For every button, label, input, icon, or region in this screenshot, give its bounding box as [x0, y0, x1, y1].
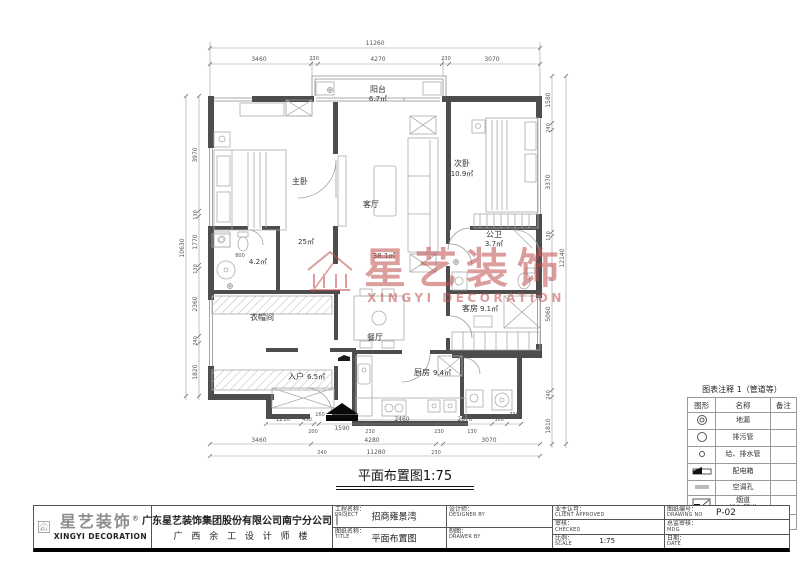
- legend-header-row: 图形 名称 备注: [688, 398, 797, 413]
- sewage-pipe-icon: [695, 431, 709, 443]
- legend-icon-cell: [688, 413, 716, 430]
- room-master-bath-area: 4.2㎡: [249, 258, 267, 266]
- dim-bottom: 3070: [481, 437, 496, 444]
- plan-title: 平面布置图1:75: [336, 465, 474, 490]
- dim-right: 130: [546, 231, 552, 241]
- dim-left: 130: [193, 210, 199, 220]
- dim-left: 130: [193, 264, 199, 274]
- dim-bottom: 230: [434, 429, 444, 435]
- dim-right: 240: [546, 390, 552, 400]
- legend-icon-cell: [688, 481, 716, 496]
- checked-cell: 审核：CHECKED: [553, 520, 664, 534]
- room-public-bath-area: 3.7㎡: [485, 240, 503, 248]
- legend-note: [770, 464, 796, 481]
- room-balcony-area: 6.7㎡: [369, 95, 387, 103]
- dim-right: 240: [546, 123, 552, 133]
- room-second-area: 10.9㎡: [451, 170, 474, 178]
- room-kitchen-area: 9.4㎡: [433, 369, 451, 377]
- date-label-en: DATE: [667, 542, 787, 547]
- dim-bottom: 130: [467, 429, 477, 435]
- dim-left: 1820: [192, 364, 199, 379]
- dim-left: 240: [193, 336, 199, 346]
- titleblock-col-staff: 设计师：DESIGNER BY 制图：DRAWER BY: [447, 506, 553, 548]
- dim-bottom: 430: [302, 417, 312, 423]
- dim-bottom: 11280: [366, 449, 385, 456]
- drawing-no-cell: 图纸编号：DRAWING NO P-02: [665, 506, 789, 520]
- room-labels: 阳台 6.7㎡ 主卧 25㎡ 客厅 38.1㎡ 次卧 10.9㎡ 4.2㎡ 衣帽…: [249, 84, 503, 381]
- legend-row: 配电箱: [688, 464, 797, 481]
- xingyi-logo-icon: [38, 509, 50, 545]
- room-cloakroom: 衣帽间: [250, 312, 274, 322]
- date-cell: 日期：DATE: [665, 535, 789, 548]
- drawing-sheet: 11260 3460 230 4270 230 3070 10630 3970 …: [0, 0, 800, 565]
- legend-note: [770, 447, 796, 464]
- client-approve-cell: 业主认可：CLIENT APPROVED: [553, 506, 664, 520]
- dim-right-total: 12140: [559, 248, 566, 267]
- distribution-box-symbol: [338, 355, 350, 361]
- furniture: [212, 82, 540, 420]
- dim-bottom: 230: [365, 429, 375, 435]
- legend-title: 图表注释 1（管道等）: [687, 384, 797, 395]
- drawer-cell: 制图：DRAWER BY: [447, 528, 552, 549]
- dim-bottom: 230: [431, 450, 441, 456]
- dim-bottom: 1590: [334, 425, 349, 432]
- dim-top: 3460: [251, 56, 266, 63]
- scale-cell: 比例：SCALE 1:75: [553, 535, 664, 548]
- titleblock-col-review: 业主认可：CLIENT APPROVED 审核：CHECKED 比例：SCALE…: [553, 506, 665, 548]
- legend-row: 给、排水管: [688, 447, 797, 464]
- designer-cell: 设计师：DESIGNER BY: [447, 506, 552, 528]
- legend-row: 地漏: [688, 413, 797, 430]
- dim-right: 3370: [545, 174, 552, 189]
- scale-value: 1:75: [599, 537, 615, 545]
- legend-header: 备注: [770, 398, 796, 413]
- titleblock-col-project: 工程名称：PROJECT 招商雍景湾 图纸名称：TITLE 平面布置图: [333, 506, 447, 548]
- room-kitchen: 厨房: [414, 367, 430, 377]
- legend-header: 图形: [688, 398, 716, 413]
- legend-name: 排污管: [716, 430, 771, 447]
- dim-bottom: 160: [315, 412, 325, 418]
- dim-top: 3070: [484, 56, 499, 63]
- room-entry-area: 6.5㎡: [307, 373, 325, 381]
- floor-drain-icon: [695, 414, 709, 426]
- dim-left: 1770: [192, 234, 199, 249]
- room-public-bath: 公卫: [486, 230, 502, 239]
- legend-name: 地漏: [716, 413, 771, 430]
- legend-icon-cell: [688, 447, 716, 464]
- dim-right: 1810: [545, 418, 552, 433]
- client-approve-label-en: CLIENT APPROVED: [555, 513, 662, 518]
- company-info: 广东星艺装饰集团股份有限公司南宁分公司｜ 广 西 余 工 设 计 师 楼: [152, 506, 333, 548]
- legend-name: 空调孔: [716, 481, 771, 496]
- legend-note: [770, 413, 796, 430]
- dim-left: 2360: [192, 296, 199, 311]
- legend-note: [770, 481, 796, 496]
- titleblock-col-number: 图纸编号：DRAWING NO P-02 总监审核：MDG 日期：DATE: [665, 506, 789, 548]
- room-balcony: 阳台: [370, 84, 386, 94]
- room-master: 主卧: [292, 176, 308, 186]
- legend-header: 名称: [716, 398, 771, 413]
- dim-bottom: 2070: [457, 416, 472, 423]
- footer-logo: 星艺装饰® XINGYI DECORATION: [34, 506, 152, 548]
- company-subtitle: 广 西 余 工 设 计 师 楼: [173, 529, 310, 542]
- checked-label-en: CHECKED: [555, 528, 662, 533]
- brand-cn-text: 星艺装饰: [60, 512, 132, 531]
- dim-top: 4270: [370, 56, 385, 63]
- director-review-label-en: MDG: [667, 528, 787, 533]
- dim-bottom: 1210: [275, 416, 290, 423]
- floor-plan: 11260 3460 230 4270 230 3070 10630 3970 …: [0, 0, 800, 500]
- legend-note: [770, 430, 796, 447]
- room-master-area: 25㎡: [298, 238, 314, 246]
- legend-icon-cell: [688, 430, 716, 447]
- dim-bottom: 3460: [251, 437, 266, 444]
- dim-top-total: 11260: [365, 40, 384, 47]
- dim-right: 5060: [545, 306, 552, 321]
- distribution-box-icon: [692, 465, 712, 477]
- room-guest: 客房: [462, 303, 478, 313]
- dim-right: 1580: [545, 92, 552, 107]
- legend-row: 排污管: [688, 430, 797, 447]
- legend-name: 配电箱: [716, 464, 771, 481]
- ac-hole-icon: [693, 482, 711, 492]
- dim-bottom: 4280: [364, 437, 379, 444]
- drawer-label-en: DRAWER BY: [449, 535, 550, 540]
- sheet-value: 平面布置图: [371, 531, 416, 544]
- legend-row: 空调孔: [688, 481, 797, 496]
- room-living-area: 38.1㎡: [373, 252, 396, 260]
- dim-top: 230: [441, 56, 451, 62]
- drawing-no-value: P-02: [716, 508, 736, 518]
- project-cell: 工程名称：PROJECT 招商雍景湾: [333, 506, 446, 528]
- director-review-cell: 总监审核：MDG: [665, 520, 789, 534]
- title-block: 星艺装饰® XINGYI DECORATION 广东星艺装饰集团股份有限公司南宁…: [33, 505, 790, 552]
- legend-icon-cell: [688, 464, 716, 481]
- dim-shower: 800: [235, 253, 245, 259]
- project-value: 招商雍景湾: [371, 510, 416, 523]
- room-guest-area: 9.1㎡: [480, 305, 498, 313]
- room-dining: 餐厅: [367, 333, 383, 342]
- footer-brand-en: XINGYI DECORATION: [54, 532, 147, 541]
- room-second: 次卧: [454, 158, 470, 168]
- supply-drain-pipe-icon: [695, 448, 709, 460]
- dim-left: 3970: [192, 147, 199, 162]
- dim-bottom: 2460: [394, 416, 409, 423]
- room-entry: 入户: [288, 371, 304, 381]
- designer-label-en: DESIGNER BY: [449, 513, 550, 518]
- company-name: 广东星艺装饰集团股份有限公司南宁分公司｜: [142, 512, 342, 527]
- dim-top: 230: [309, 56, 319, 62]
- sheet-name-cell: 图纸名称：TITLE 平面布置图: [333, 528, 446, 549]
- dim-left-total: 10630: [179, 238, 186, 257]
- dim-bottom: 200: [308, 429, 318, 435]
- dim-bottom: 730: [509, 412, 519, 418]
- room-living: 客厅: [363, 199, 379, 209]
- dim-bottom: 240: [317, 450, 327, 456]
- legend-name: 给、排水管: [716, 447, 771, 464]
- footer-brand-cn: 星艺装饰®: [60, 514, 141, 530]
- registered-mark: ®: [132, 514, 141, 522]
- dim-bottom: 500: [494, 417, 504, 423]
